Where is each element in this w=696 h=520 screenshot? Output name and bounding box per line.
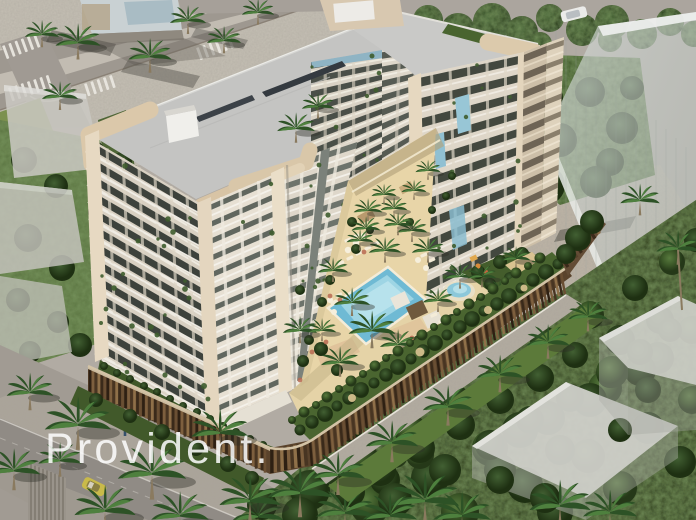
svg-text:Provident.: Provident. xyxy=(45,425,271,473)
